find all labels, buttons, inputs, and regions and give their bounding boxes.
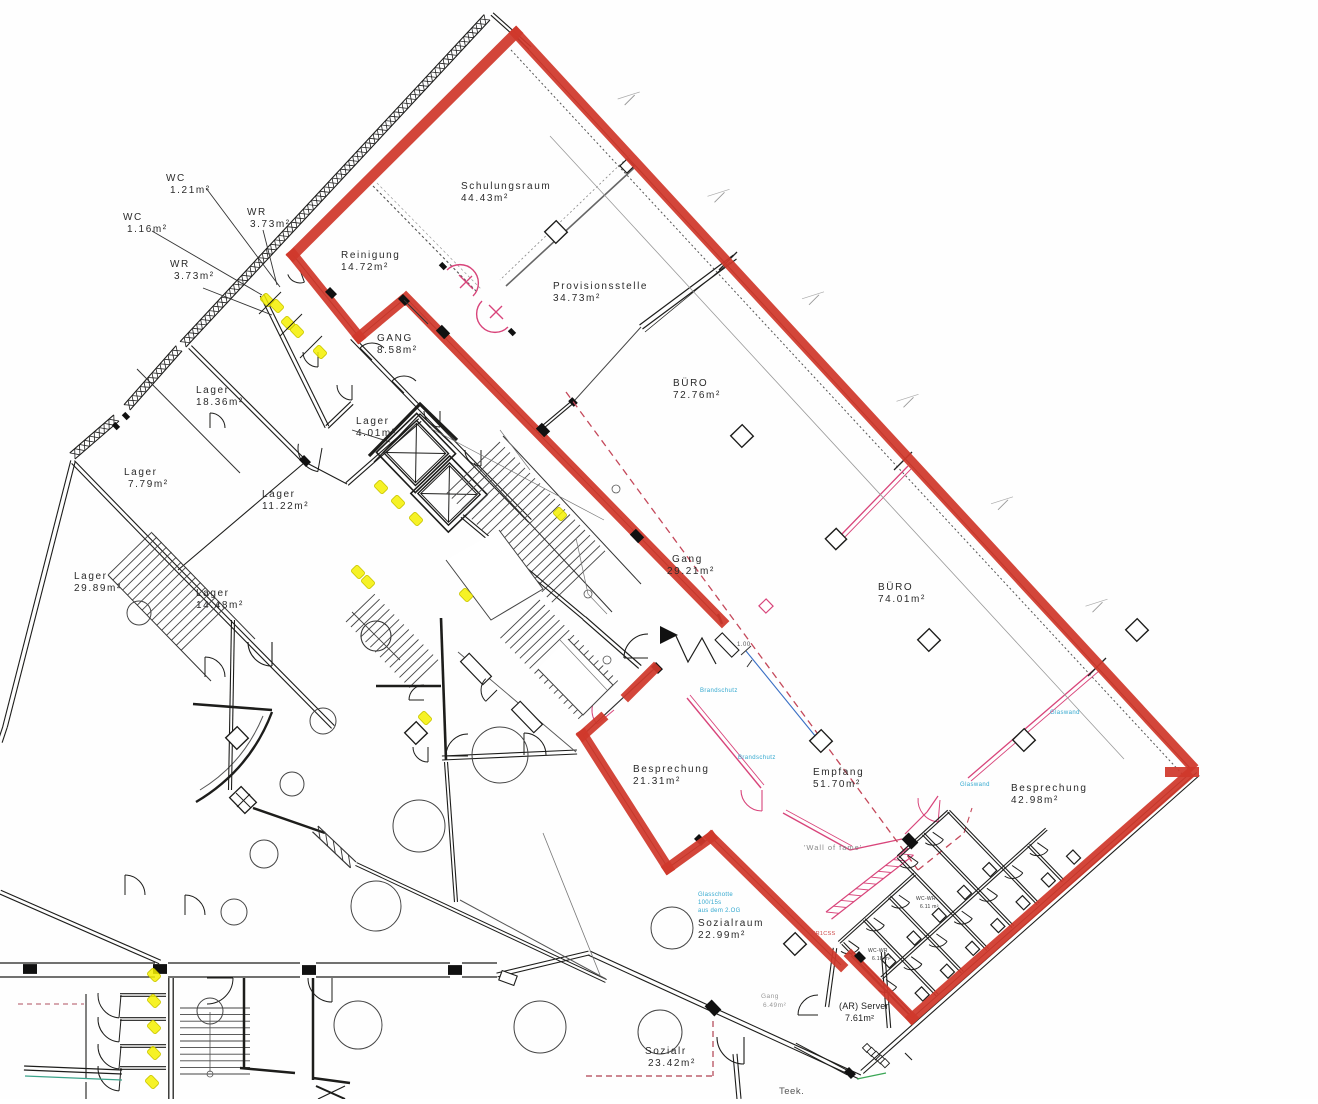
svg-text:11.22m²: 11.22m² (262, 501, 309, 512)
svg-text:22.99m²: 22.99m² (698, 930, 746, 941)
svg-text:Lager: Lager (74, 571, 108, 582)
svg-text:Sozialraum: Sozialraum (698, 918, 764, 929)
svg-text:7.79m²: 7.79m² (128, 479, 169, 490)
svg-text:51.70m²: 51.70m² (813, 779, 861, 790)
svg-text:Gang: Gang (761, 993, 779, 1000)
svg-text:Lager: Lager (262, 489, 296, 500)
svg-text:Gang: Gang (672, 554, 703, 565)
svg-text:6.18 m²: 6.18 m² (872, 956, 891, 962)
svg-text:3.73m²: 3.73m² (174, 271, 215, 282)
svg-text:WC-WR: WC-WR (916, 896, 936, 902)
svg-text:Glasschotte: Glasschotte (698, 892, 733, 898)
svg-text:Teek.: Teek. (779, 1086, 804, 1097)
svg-text:Brandschutz: Brandschutz (700, 688, 738, 694)
svg-text:1.00: 1.00 (737, 642, 751, 648)
svg-text:Schulungsraum: Schulungsraum (461, 181, 551, 192)
svg-text:74.01m²: 74.01m² (878, 594, 926, 605)
svg-text:WR: WR (170, 259, 190, 270)
svg-text:'Wall of fame': 'Wall of fame' (804, 843, 862, 852)
svg-text:3.73m²: 3.73m² (250, 219, 291, 230)
svg-text:6.49m²: 6.49m² (763, 1002, 787, 1009)
svg-text:6.11 m²: 6.11 m² (920, 904, 939, 910)
svg-text:WC-WR: WC-WR (868, 948, 888, 954)
svg-text:Lager: Lager (356, 416, 390, 427)
svg-text:Lager: Lager (196, 385, 230, 396)
svg-text:Glaswand: Glaswand (960, 782, 990, 788)
svg-text:42.98m²: 42.98m² (1011, 795, 1059, 806)
svg-text:Besprechung: Besprechung (633, 764, 710, 775)
svg-text:29.21m²: 29.21m² (667, 566, 715, 577)
svg-text:8.58m²: 8.58m² (377, 345, 418, 356)
svg-text:WC: WC (166, 173, 186, 184)
svg-text:(AR) Server: (AR) Server (839, 1001, 889, 1011)
svg-text:Brandschutz: Brandschutz (738, 755, 776, 761)
svg-text:Reinigung: Reinigung (341, 250, 400, 261)
svg-text:29.89m²: 29.89m² (74, 583, 122, 594)
svg-text:7.61m²: 7.61m² (845, 1013, 874, 1023)
svg-text:34.73m²: 34.73m² (553, 293, 601, 304)
svg-text:4.01m²: 4.01m² (356, 428, 397, 439)
svg-text:BÜRO: BÜRO (673, 377, 708, 389)
svg-text:21.31m²: 21.31m² (633, 776, 681, 787)
svg-text:23.42m²: 23.42m² (648, 1058, 696, 1069)
svg-text:Lager: Lager (124, 467, 158, 478)
svg-text:WC: WC (123, 212, 143, 223)
svg-text:Empfang: Empfang (813, 767, 864, 778)
svg-text:44.43m²: 44.43m² (461, 193, 509, 204)
svg-text:FR1CSS: FR1CSS (812, 931, 836, 937)
svg-text:BÜRO: BÜRO (878, 581, 913, 593)
svg-text:aus dem 2.OG: aus dem 2.OG (698, 908, 741, 914)
svg-text:GANG: GANG (377, 333, 413, 344)
svg-text:Glaswand: Glaswand (1050, 710, 1080, 716)
svg-text:Besprechung: Besprechung (1011, 783, 1088, 794)
svg-text:Sozialr: Sozialr (645, 1046, 687, 1057)
svg-text:100/15s: 100/15s (698, 900, 721, 906)
svg-text:72.76m²: 72.76m² (673, 390, 721, 401)
svg-text:Provisionsstelle: Provisionsstelle (553, 281, 648, 292)
svg-text:14.48m²: 14.48m² (196, 600, 244, 611)
svg-text:14.72m²: 14.72m² (341, 262, 389, 273)
svg-text:Lager: Lager (196, 588, 230, 599)
svg-text:1.21m²: 1.21m² (170, 185, 211, 196)
svg-text:18.36m²: 18.36m² (196, 397, 244, 408)
svg-text:1.16m²: 1.16m² (127, 224, 168, 235)
svg-text:WR: WR (247, 207, 267, 218)
